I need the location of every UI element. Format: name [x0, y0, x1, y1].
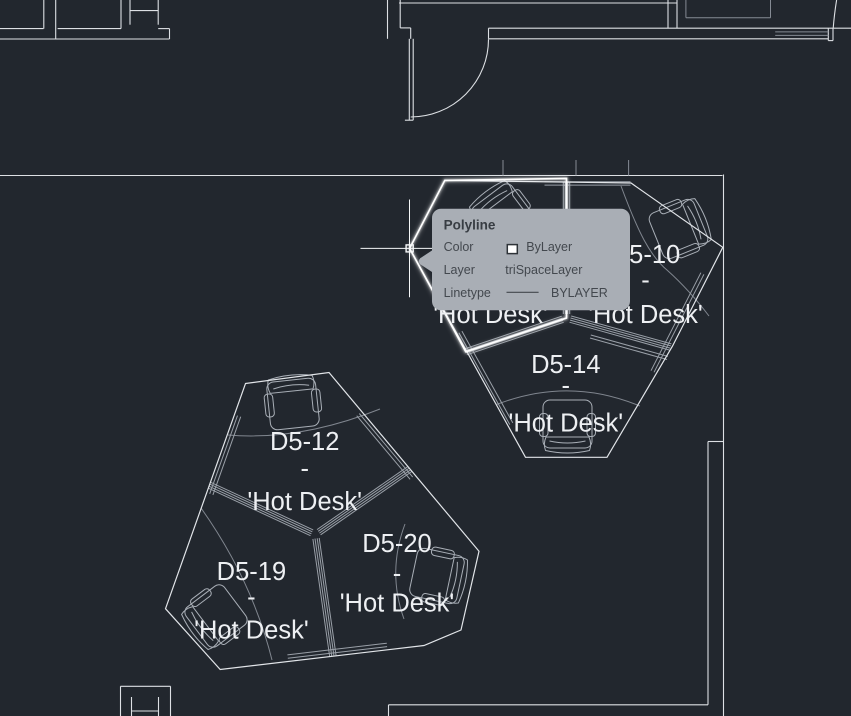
svg-text:triSpaceLayer: triSpaceLayer [505, 263, 582, 277]
svg-text:-: - [247, 584, 256, 612]
svg-text:Color: Color [444, 240, 474, 254]
svg-text:ByLayer: ByLayer [526, 240, 572, 254]
svg-text:'Hot Desk': 'Hot Desk' [508, 409, 623, 437]
svg-text:Polyline: Polyline [444, 218, 496, 233]
svg-text:Layer: Layer [444, 263, 475, 277]
svg-text:'Hot Desk': 'Hot Desk' [340, 589, 455, 617]
svg-text:'Hot Desk': 'Hot Desk' [194, 616, 309, 644]
svg-text:D5-20: D5-20 [362, 530, 431, 558]
svg-text:D5-19: D5-19 [217, 558, 286, 586]
svg-text:-: - [393, 560, 402, 588]
svg-text:D5-12: D5-12 [270, 428, 339, 456]
svg-text:-: - [641, 266, 650, 294]
svg-text:BYLAYER: BYLAYER [551, 286, 608, 300]
svg-text:-: - [300, 455, 309, 483]
svg-text:Linetype: Linetype [444, 286, 491, 300]
svg-text:-: - [562, 372, 571, 400]
svg-text:'Hot Desk': 'Hot Desk' [247, 488, 362, 516]
